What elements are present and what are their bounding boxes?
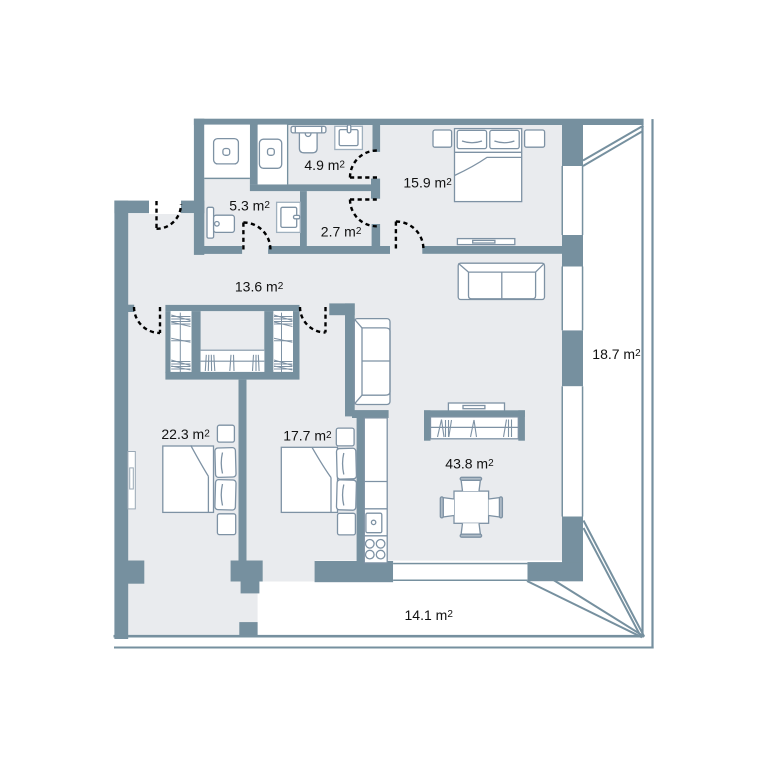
svg-text:2.7 m2: 2.7 m2	[321, 224, 362, 240]
svg-text:17.7 m2: 17.7 m2	[283, 428, 332, 444]
svg-text:4.9 m2: 4.9 m2	[304, 157, 345, 173]
svg-text:43.8 m2: 43.8 m2	[445, 456, 494, 472]
svg-text:22.3 m2: 22.3 m2	[161, 426, 210, 442]
svg-text:5.3 m2: 5.3 m2	[229, 197, 270, 213]
svg-text:15.9 m2: 15.9 m2	[403, 175, 452, 191]
svg-text:13.6 m2: 13.6 m2	[235, 279, 284, 295]
svg-text:14.1 m2: 14.1 m2	[405, 607, 454, 623]
svg-text:18.7 m2: 18.7 m2	[592, 346, 641, 362]
